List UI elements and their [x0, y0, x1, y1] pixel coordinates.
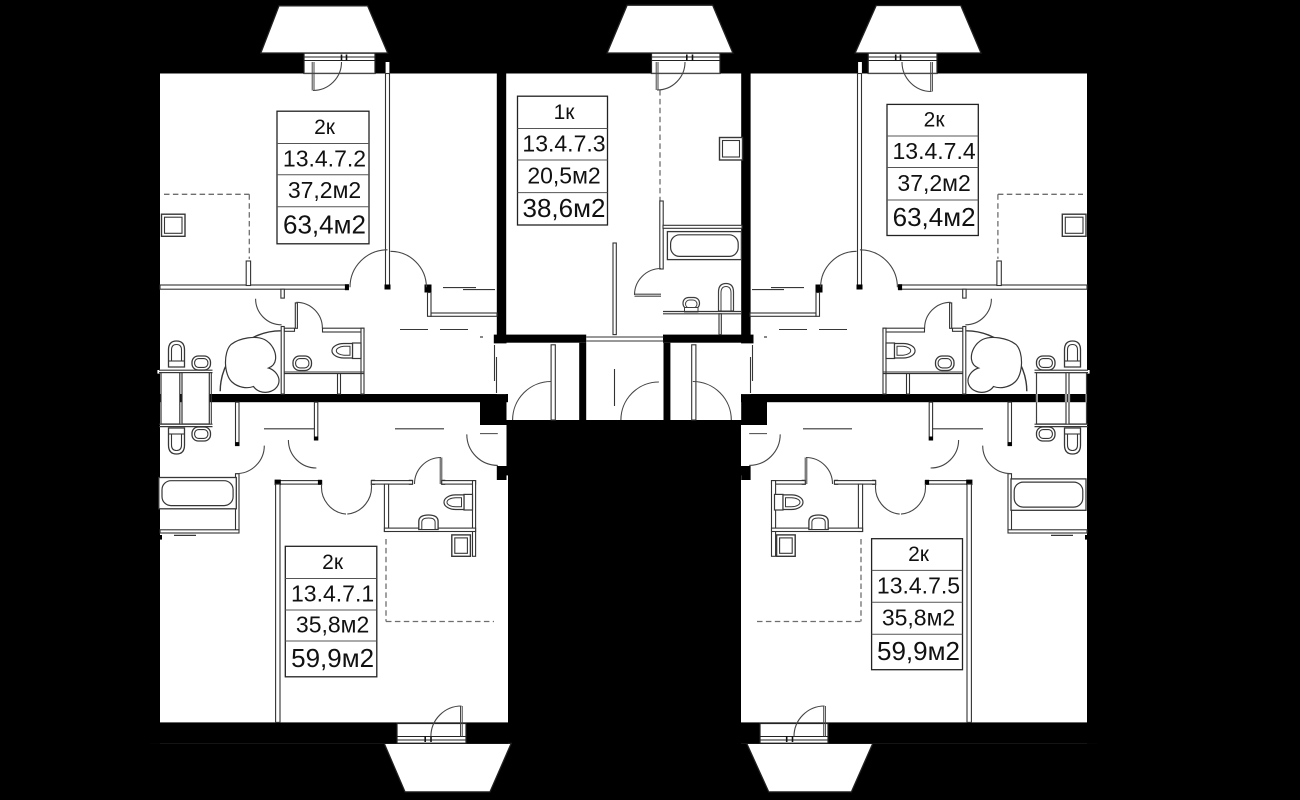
svg-text:13.4.7.5: 13.4.7.5	[877, 572, 960, 598]
svg-text:59,9м2: 59,9м2	[877, 636, 960, 666]
svg-text:13.4.7.2: 13.4.7.2	[283, 145, 366, 171]
svg-text:1к: 1к	[554, 101, 576, 124]
svg-text:2к: 2к	[314, 116, 336, 139]
svg-text:20,5м2: 20,5м2	[527, 162, 600, 188]
svg-text:2к: 2к	[924, 109, 946, 132]
svg-text:38,6м2: 38,6м2	[523, 193, 606, 223]
svg-text:37,2м2: 37,2м2	[897, 170, 970, 196]
svg-text:63,4м2: 63,4м2	[283, 209, 366, 239]
svg-text:59,9м2: 59,9м2	[291, 643, 374, 673]
svg-text:35,8м2: 35,8м2	[882, 604, 955, 630]
svg-text:37,2м2: 37,2м2	[288, 177, 361, 203]
svg-text:13.4.7.3: 13.4.7.3	[522, 130, 605, 156]
svg-text:13.4.7.1: 13.4.7.1	[291, 580, 374, 606]
svg-text:63,4м2: 63,4м2	[893, 202, 976, 232]
svg-text:2к: 2к	[908, 543, 930, 566]
svg-text:2к: 2к	[322, 551, 344, 574]
svg-text:35,8м2: 35,8м2	[296, 612, 369, 638]
svg-text:13.4.7.4: 13.4.7.4	[893, 138, 976, 164]
